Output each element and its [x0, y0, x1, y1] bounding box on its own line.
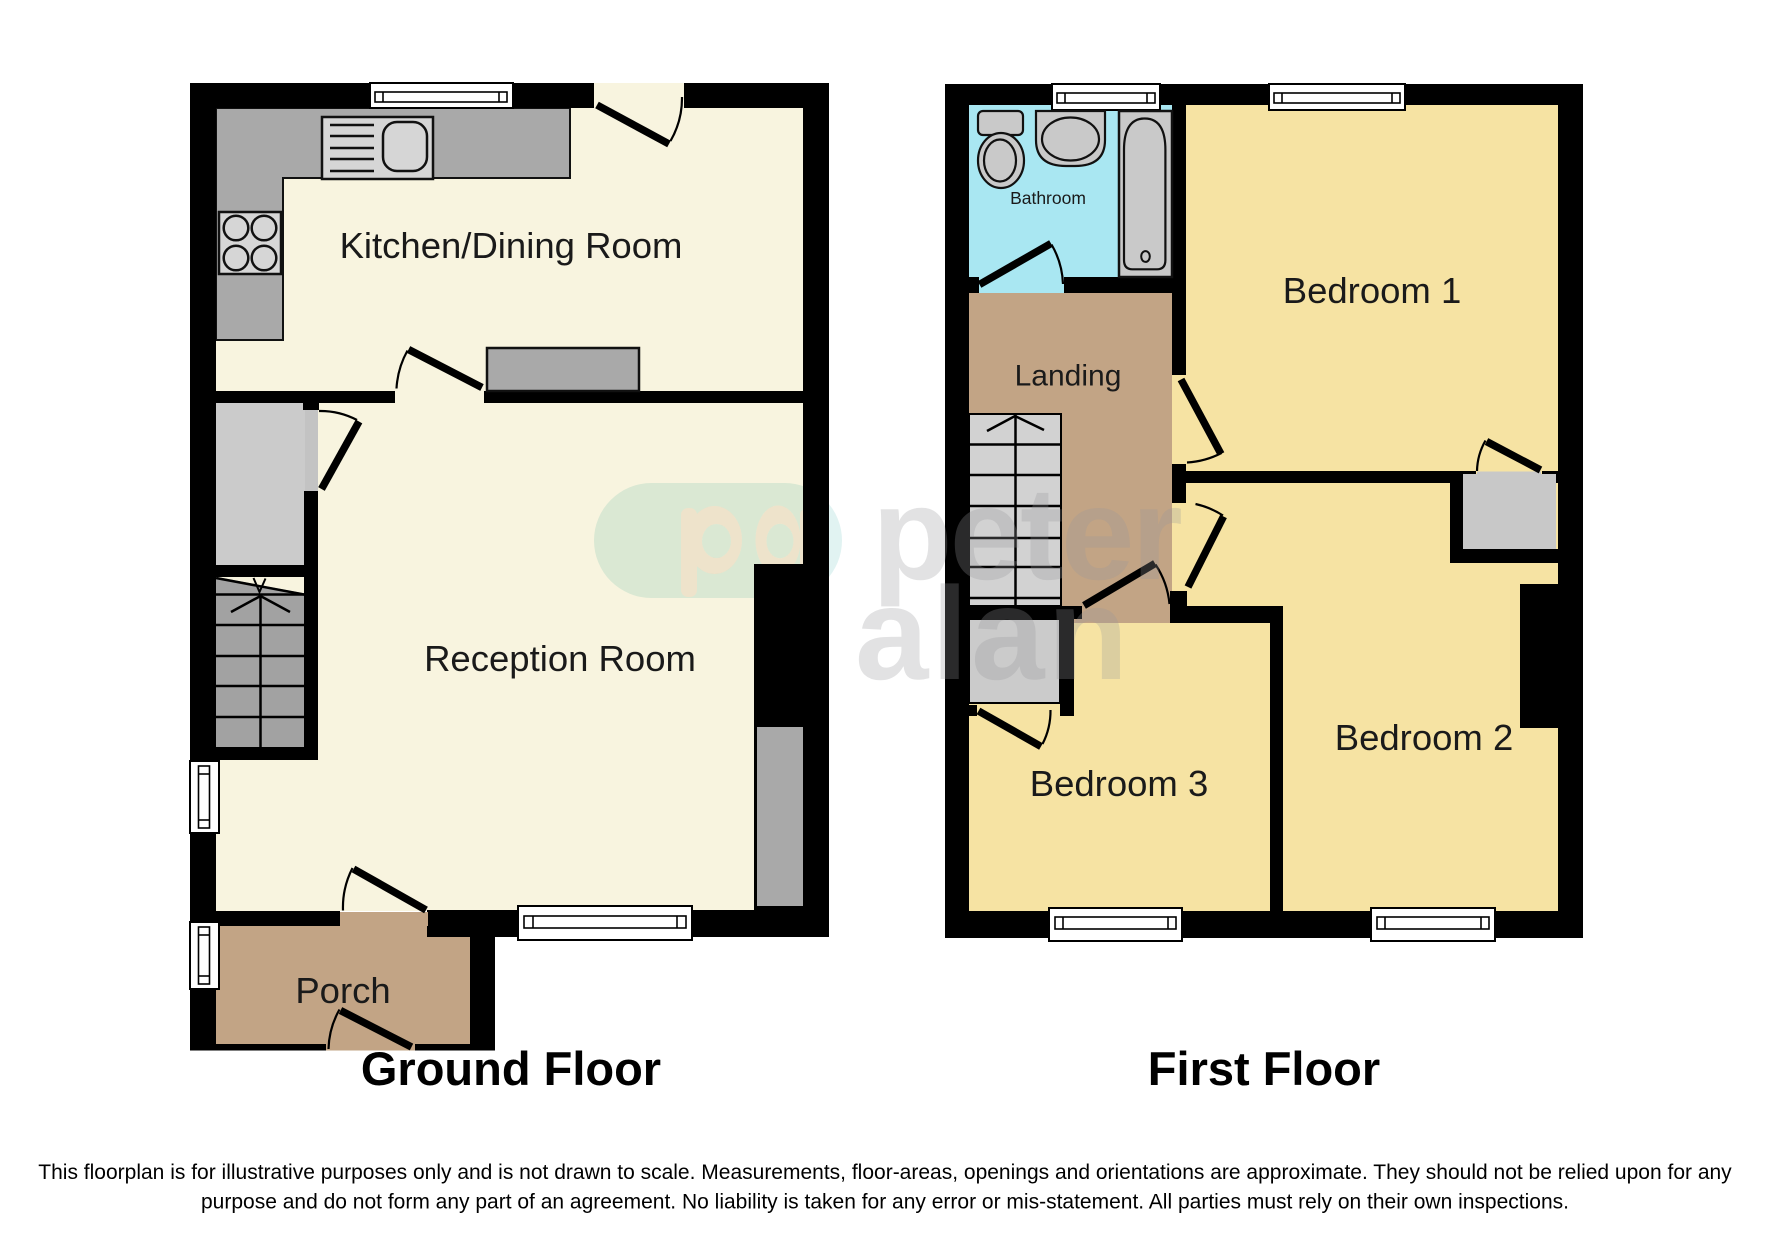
- svg-text:Bedroom 3: Bedroom 3: [1030, 763, 1209, 804]
- svg-text:Kitchen/Dining Room: Kitchen/Dining Room: [340, 225, 683, 266]
- svg-text:Bathroom: Bathroom: [1010, 188, 1086, 208]
- svg-text:This floorplan is for illustra: This floorplan is for illustrative purpo…: [38, 1161, 1732, 1184]
- svg-text:Porch: Porch: [295, 970, 390, 1011]
- svg-text:Bedroom 1: Bedroom 1: [1283, 270, 1462, 311]
- svg-text:alan: alan: [855, 560, 1131, 707]
- svg-text:purpose and do not form any pa: purpose and do not form any part of an a…: [201, 1191, 1569, 1214]
- svg-text:Reception Room: Reception Room: [424, 638, 696, 679]
- svg-text:Ground Floor: Ground Floor: [361, 1042, 661, 1095]
- svg-text:First Floor: First Floor: [1148, 1042, 1380, 1095]
- svg-text:Bedroom 2: Bedroom 2: [1335, 717, 1514, 758]
- svg-text:Landing: Landing: [1015, 360, 1122, 393]
